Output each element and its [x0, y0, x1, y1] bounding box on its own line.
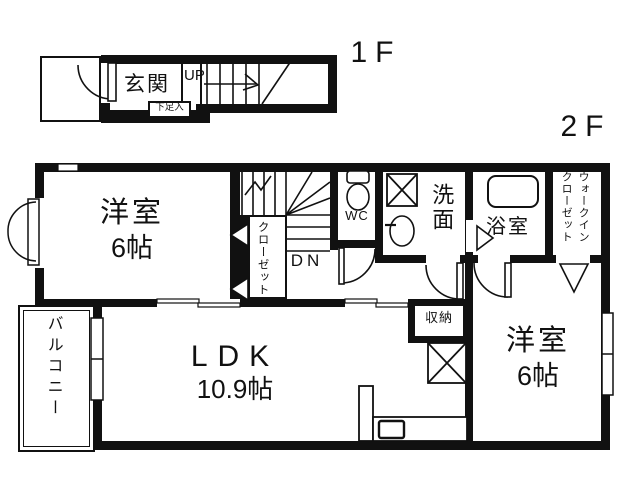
balcony-door-icon	[91, 318, 103, 400]
closet-label: クローゼット	[256, 221, 269, 296]
wic-folding-door-icon	[560, 264, 588, 292]
washroom-label: 洗面	[429, 183, 453, 233]
toilet-icon	[347, 171, 369, 210]
room-northwest-name: 洋室	[62, 198, 202, 230]
storage-crossbox-icon	[428, 343, 466, 383]
casement-window-icon	[8, 199, 39, 265]
toilet-label: WC	[338, 209, 376, 223]
stairs-up-label: UP	[184, 66, 200, 85]
stairs-1f-icon	[204, 61, 291, 104]
floor2-label: 2F	[554, 110, 618, 143]
storage-label: 収納	[412, 311, 466, 325]
top-wall-window-icon	[58, 164, 78, 171]
bathtub-icon	[488, 176, 538, 207]
kitchen-counter-icon	[359, 386, 467, 441]
entrance-door-icon	[78, 63, 116, 101]
ldk-size: 10.9帖	[110, 375, 360, 404]
shoe-cupboard-label: 下足入	[148, 103, 191, 113]
balcony-label: バルコニー	[44, 315, 62, 420]
walk-in-closet-label-line2: クローゼット	[560, 171, 572, 243]
east-room-door-icon	[474, 263, 511, 297]
bathroom-label: 浴室	[474, 216, 542, 238]
closet-door-markers-icon	[231, 224, 248, 300]
room-east-size: 6帖	[472, 362, 604, 392]
sink-icon	[385, 216, 414, 246]
floor1-label: 1F	[344, 36, 408, 69]
floor-plan-canvas: 1F 2F 玄関 UP 下足入 洋室 6帖 クローゼット DN WC 洗面 浴室…	[0, 0, 640, 480]
stairs-dn-label: DN	[284, 252, 330, 271]
washing-machine-icon	[387, 174, 417, 206]
room-east-name: 洋室	[472, 326, 604, 358]
entrance-label: 玄関	[112, 73, 182, 96]
wc-door-icon	[339, 248, 375, 284]
walk-in-closet-label-line1: ウォークイン	[577, 171, 589, 243]
room-northwest-size: 6帖	[62, 234, 202, 264]
washroom-door-icon	[426, 263, 463, 299]
ldk-name: LDK	[110, 340, 360, 373]
